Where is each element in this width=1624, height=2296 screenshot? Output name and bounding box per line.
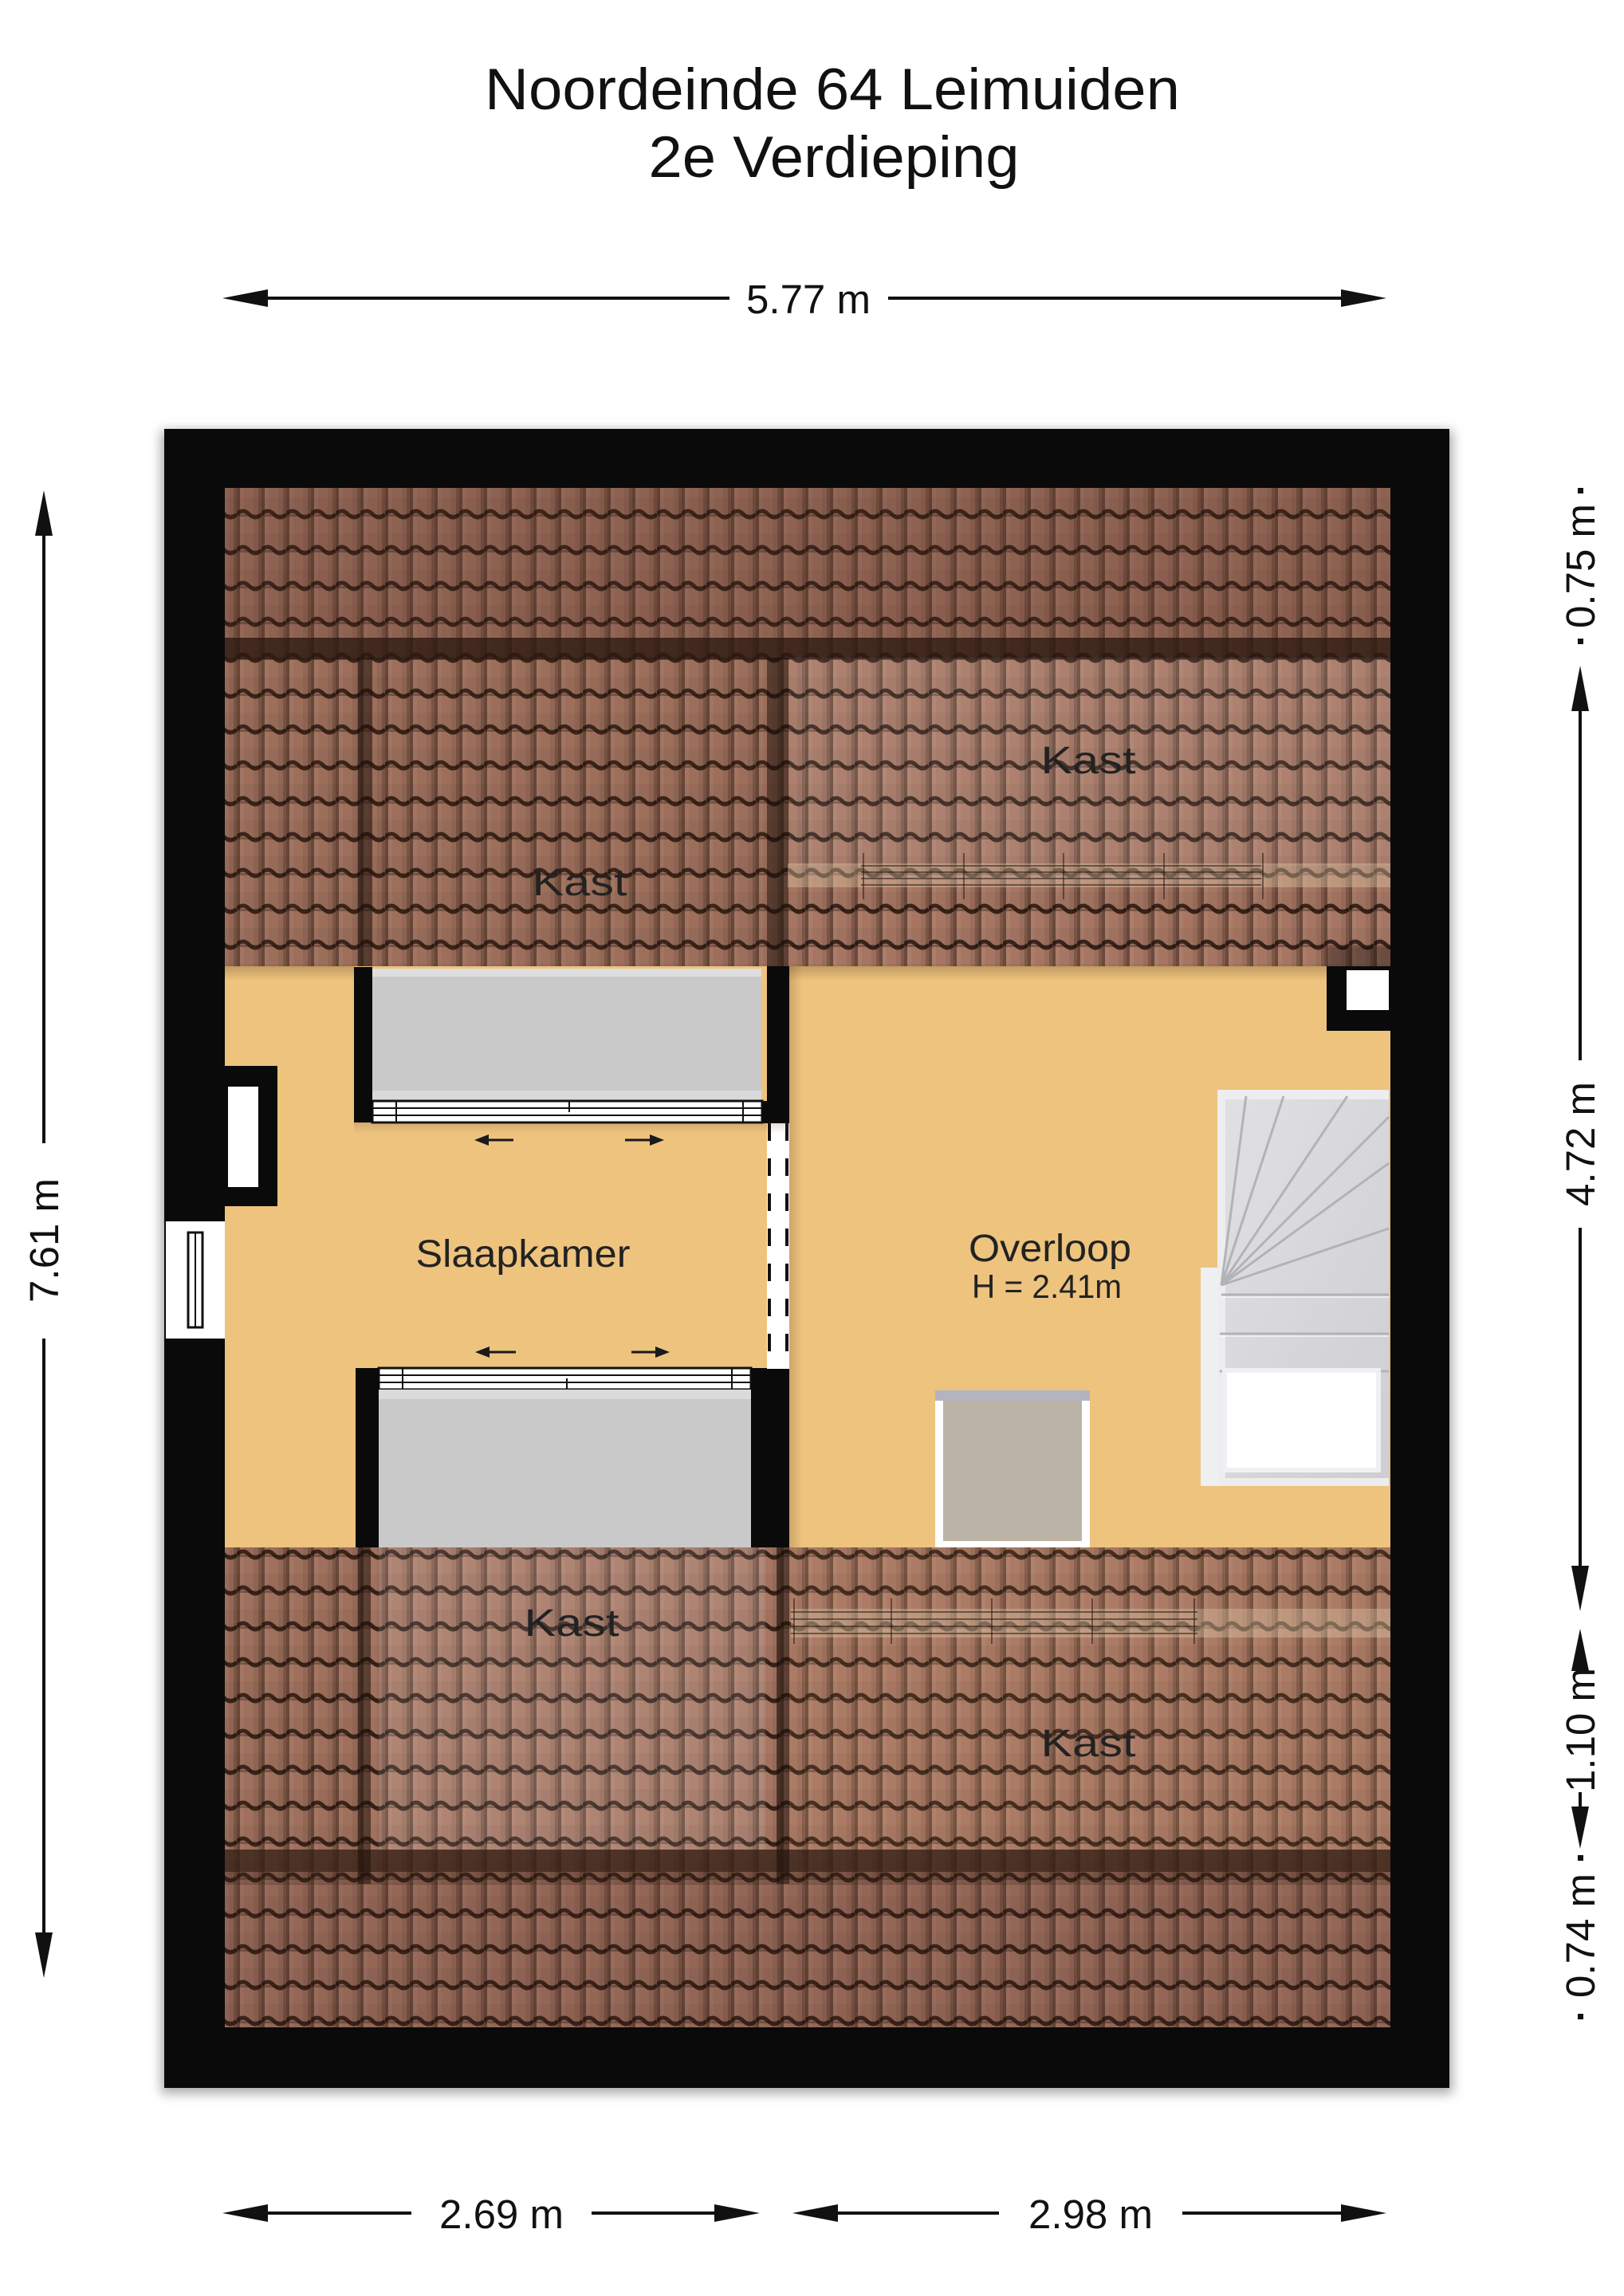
svg-text:Kast: Kast xyxy=(533,862,627,904)
svg-text:Kast: Kast xyxy=(1041,740,1136,782)
svg-text:0.75 m: 0.75 m xyxy=(1558,504,1603,628)
svg-text:0.74 m: 0.74 m xyxy=(1558,1873,1603,1998)
svg-text:Slaapkamer: Slaapkamer xyxy=(416,1233,631,1276)
svg-text:Kast: Kast xyxy=(1041,1723,1136,1765)
svg-text:Noordeinde 64 Leimuiden: Noordeinde 64 Leimuiden xyxy=(485,57,1180,122)
svg-text:4.72 m: 4.72 m xyxy=(1558,1082,1603,1206)
svg-text:5.77 m: 5.77 m xyxy=(746,277,871,322)
svg-text:2e Verdieping: 2e Verdieping xyxy=(649,125,1020,190)
svg-text:H = 2.41m: H = 2.41m xyxy=(972,1268,1122,1305)
svg-text:Overloop: Overloop xyxy=(969,1228,1131,1270)
svg-text:Kast: Kast xyxy=(525,1602,619,1645)
svg-text:2.69 m: 2.69 m xyxy=(439,2192,564,2237)
svg-text:2.98 m: 2.98 m xyxy=(1028,2192,1153,2237)
svg-text:1.10 m: 1.10 m xyxy=(1558,1668,1603,1792)
svg-text:7.61 m: 7.61 m xyxy=(22,1178,67,1303)
